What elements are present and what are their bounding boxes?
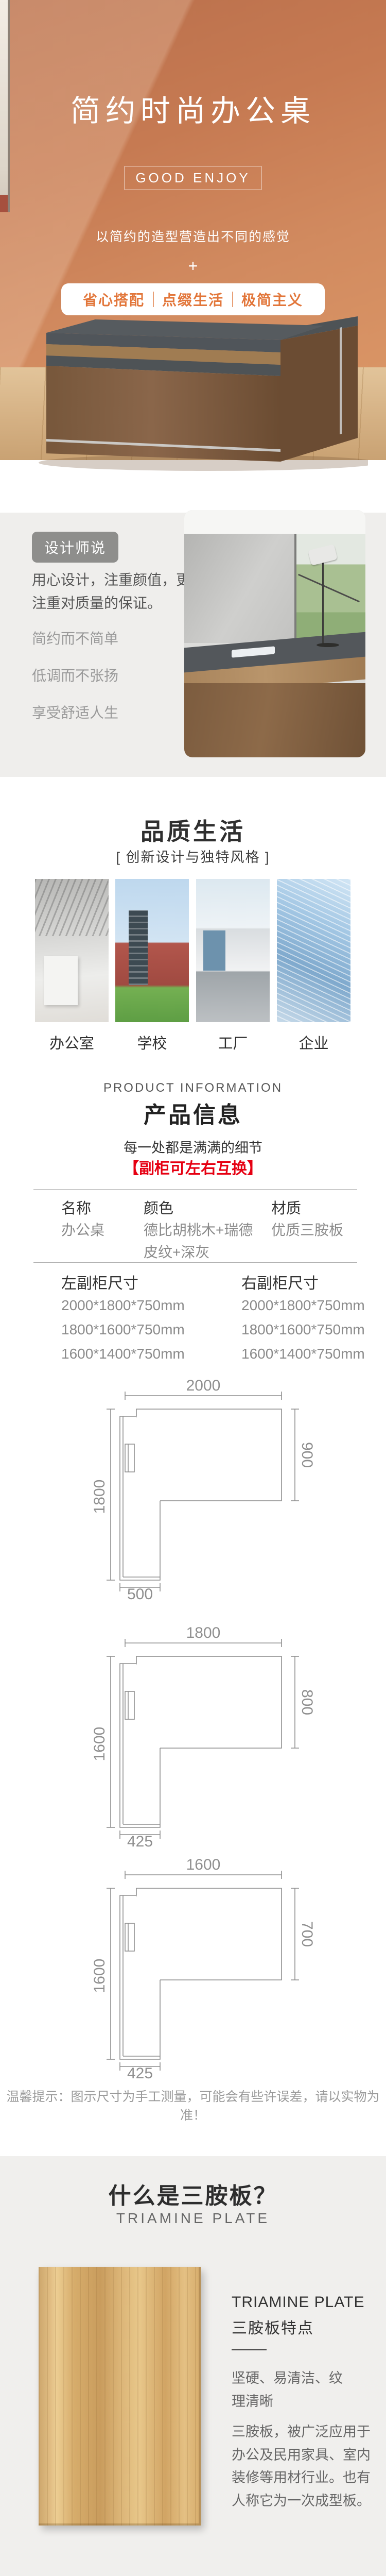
triamine-subtitle: TRIAMINE PLATE: [0, 2210, 386, 2227]
designer-point: 低调而不张扬: [32, 665, 118, 685]
designer-desk-photo: [184, 510, 365, 757]
dimension-diagram-2000: 2000 1800 900 500: [59, 1378, 327, 1600]
scene-image-enterprise: [277, 879, 350, 1022]
svg-text:1600: 1600: [91, 1727, 108, 1761]
quality-title: 品质生活: [0, 813, 386, 847]
quality-subtitle: [ 创新设计与独特风格 ]: [0, 846, 386, 866]
product-info-title: 产品信息: [0, 1096, 386, 1129]
triamine-paragraph: 三胺板，被广泛应用于 办公及民用家具、室内 装修等用材行业。也有 人称它为一次成…: [232, 2420, 378, 2512]
hero-badge-wrap: GOOD ENJOY: [0, 166, 386, 190]
svg-text:1600: 1600: [91, 1959, 108, 1993]
designer-point: 享受舒适人生: [32, 702, 118, 722]
hero-badge: GOOD ENJOY: [125, 166, 261, 190]
photo-desk-panel: [184, 683, 365, 757]
dimension-diagram-1600: 1600 1600 700 425: [59, 1857, 327, 2079]
right-size-row: 1800*1600*750mm: [241, 1318, 365, 1341]
triamine-heading-en: TRIAMINE PLATE: [232, 2294, 364, 2311]
hero-plus-symbol: +: [0, 257, 386, 276]
spec-header-material: 材质: [271, 1196, 301, 1218]
scene-image-factory: [196, 879, 270, 1022]
scene-label: 工厂: [196, 1031, 270, 1053]
svg-text:1800: 1800: [186, 1625, 221, 1641]
triamine-features: 坚硬、易清洁、纹 理清晰: [232, 2367, 371, 2413]
left-size-header: 左副柜尺寸: [61, 1270, 138, 1293]
svg-text:2000: 2000: [186, 1378, 221, 1394]
desk-lamp-base: [317, 643, 339, 647]
divider-line: [232, 2349, 267, 2350]
svg-text:1800: 1800: [91, 1480, 108, 1514]
desk-lamp-pole: [322, 560, 324, 646]
hero-title: 简约时尚办公桌: [0, 87, 386, 130]
left-size-row: 1600*1400*750mm: [61, 1343, 185, 1365]
designer-paragraph: 用心设计，注重颜值，更 注重对质量的保证。: [32, 569, 191, 615]
svg-text:425: 425: [127, 2065, 153, 2079]
triamine-title: 什么是三胺板？: [0, 2177, 386, 2210]
svg-text:500: 500: [127, 1586, 153, 1600]
right-size-row: 1600*1400*750mm: [241, 1343, 365, 1365]
svg-text:1600: 1600: [186, 1857, 221, 1873]
spec-value-color: 德比胡桃木+瑞德 皮纹+深灰: [144, 1219, 253, 1264]
photo-concrete-wall: [184, 534, 296, 643]
right-size-row: 2000*1800*750mm: [241, 1294, 365, 1316]
product-info-line: 每一处都是满满的细节: [0, 1137, 386, 1157]
hero-desk-image: [18, 299, 368, 474]
spec-value-material: 优质三胺板: [271, 1219, 343, 1241]
size-note: 温馨提示：图示尺寸为手工测量，可能会有些许误差，请以实物为准！: [0, 2087, 386, 2124]
scene-label: 学校: [115, 1031, 189, 1053]
svg-text:425: 425: [127, 1833, 153, 1847]
triamine-board-image: [39, 2267, 201, 2526]
hero-subtitle: 以简约的造型营造出不同的感觉: [0, 227, 386, 245]
photo-ceiling: [184, 510, 365, 534]
scene-image-school: [115, 879, 189, 1022]
product-info-highlight: 【副柜可左右互换】: [0, 1156, 386, 1178]
triamine-heading-cn: 三胺板特点: [232, 2315, 314, 2338]
spec-header-color: 颜色: [144, 1196, 173, 1218]
scene-label: 办公室: [35, 1031, 109, 1053]
product-info-eyebrow: PRODUCT INFORMATION: [0, 1081, 386, 1095]
product-detail-page: 简约时尚办公桌 GOOD ENJOY 以简约的造型营造出不同的感觉 + 省心搭配…: [0, 0, 386, 2576]
svg-text:900: 900: [299, 1442, 315, 1468]
scene-label: 企业: [277, 1031, 350, 1053]
divider-line: [33, 1262, 357, 1263]
dimension-diagram-1800: 1800 1600 800 425: [59, 1625, 327, 1847]
left-size-row: 2000*1800*750mm: [61, 1294, 185, 1316]
spec-header-name: 名称: [61, 1196, 91, 1218]
svg-text:800: 800: [299, 1689, 315, 1715]
spec-value-name: 办公桌: [61, 1219, 104, 1241]
svg-text:700: 700: [299, 1921, 315, 1947]
scene-image-office: [35, 879, 109, 1022]
designer-badge: 设计师说: [32, 532, 118, 563]
designer-point: 简约而不简单: [32, 628, 118, 648]
left-size-row: 1800*1600*750mm: [61, 1318, 185, 1341]
divider-line: [33, 1189, 357, 1190]
right-size-header: 右副柜尺寸: [241, 1270, 319, 1293]
